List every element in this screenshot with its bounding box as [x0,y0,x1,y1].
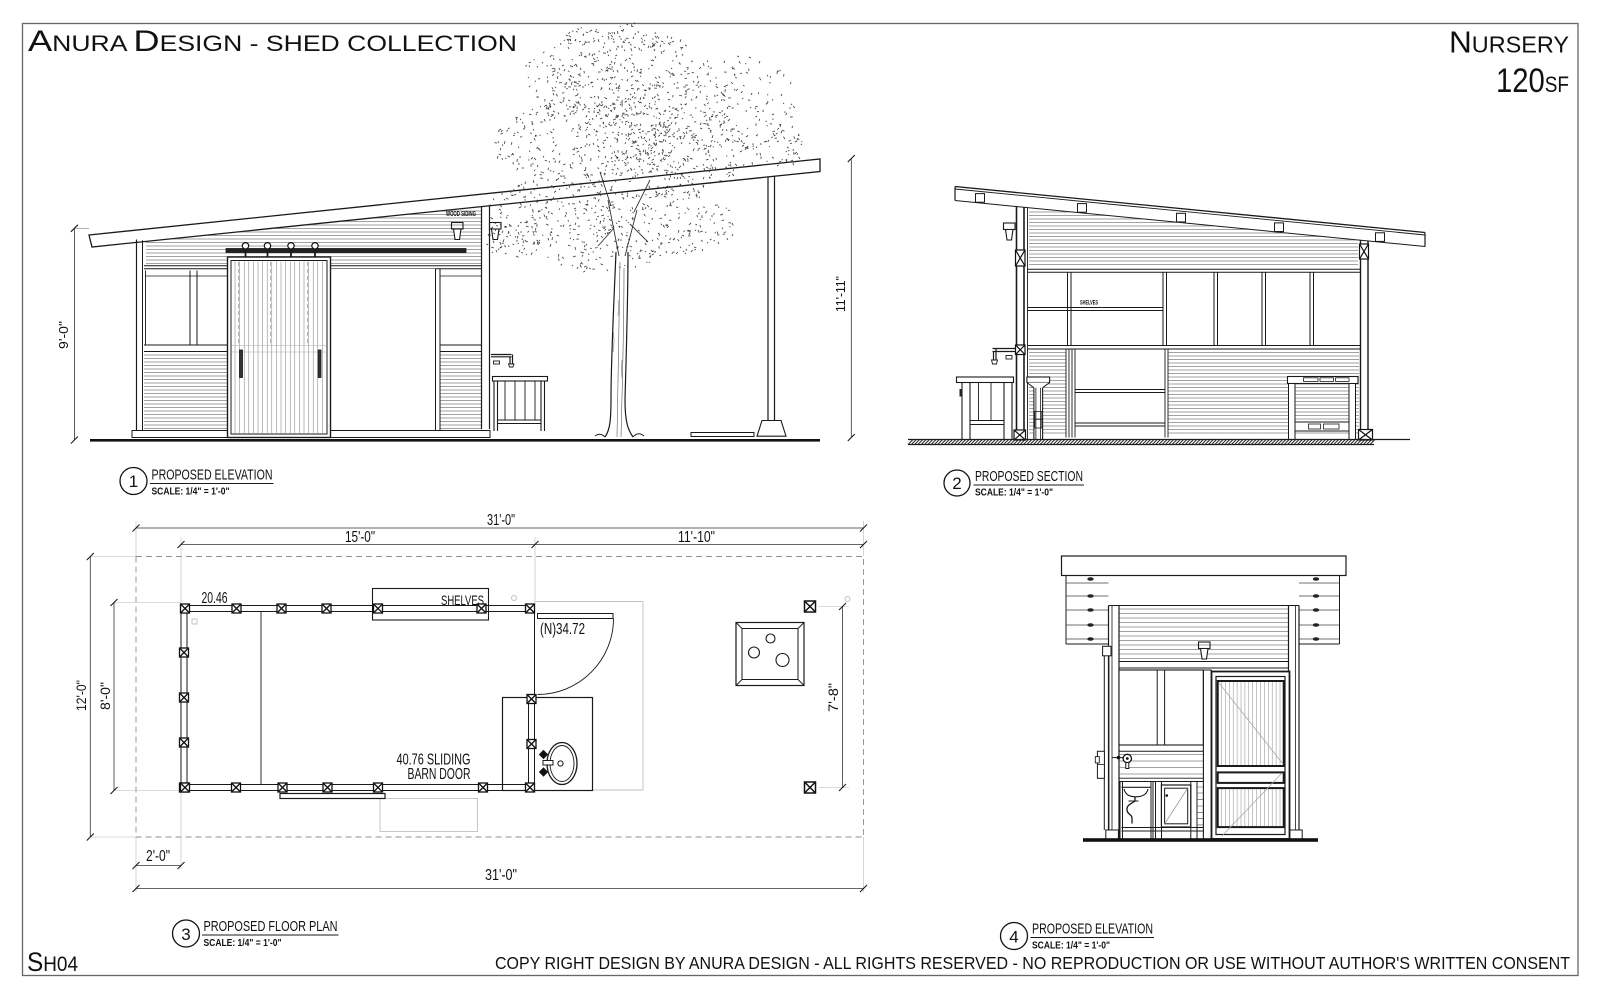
svg-text:SCALE: 1/4" = 1'-0": SCALE: 1/4" = 1'-0" [204,937,282,949]
svg-text:31'-0": 31'-0" [487,512,515,529]
svg-text:31'-0": 31'-0" [485,867,517,884]
svg-text:2'-0": 2'-0" [146,848,170,865]
svg-text:8'-0": 8'-0" [98,682,113,710]
svg-text:SCALE: 1/4" = 1'-0": SCALE: 1/4" = 1'-0" [1032,940,1110,952]
svg-text:WOOD SIDING: WOOD SIDING [446,211,476,218]
svg-text:9'-0": 9'-0" [56,321,71,349]
svg-text:SCALE: 1/4" = 1'-0": SCALE: 1/4" = 1'-0" [152,486,230,498]
svg-text:11'-11": 11'-11" [833,276,848,312]
svg-text:7'-8": 7'-8" [826,683,841,712]
svg-text:4: 4 [1009,928,1018,947]
svg-text:12'-0": 12'-0" [74,680,89,711]
svg-text:20.46: 20.46 [202,590,228,607]
svg-text:2: 2 [952,474,961,493]
svg-text:PROPOSED FLOOR PLAN: PROPOSED FLOOR PLAN [204,918,338,935]
svg-text:(N)34.72: (N)34.72 [540,621,585,638]
svg-text:11'-10": 11'-10" [678,529,715,546]
svg-text:PROPOSED ELEVATION: PROPOSED ELEVATION [152,467,273,484]
svg-text:PROPOSED SECTION: PROPOSED SECTION [975,468,1083,485]
svg-text:15'-0": 15'-0" [345,529,375,546]
svg-text:1: 1 [129,472,138,491]
svg-text:BARN DOOR: BARN DOOR [408,766,471,783]
svg-text:COPY RIGHT DESIGN BY ANURA DES: COPY RIGHT DESIGN BY ANURA DESIGN - ALL … [495,953,1570,973]
svg-text:SHELVES: SHELVES [1080,301,1098,307]
svg-text:3: 3 [181,925,190,944]
svg-text:PROPOSED ELEVATION: PROPOSED ELEVATION [1032,921,1153,938]
svg-text:SCALE: 1/4" = 1'-0": SCALE: 1/4" = 1'-0" [975,487,1053,499]
